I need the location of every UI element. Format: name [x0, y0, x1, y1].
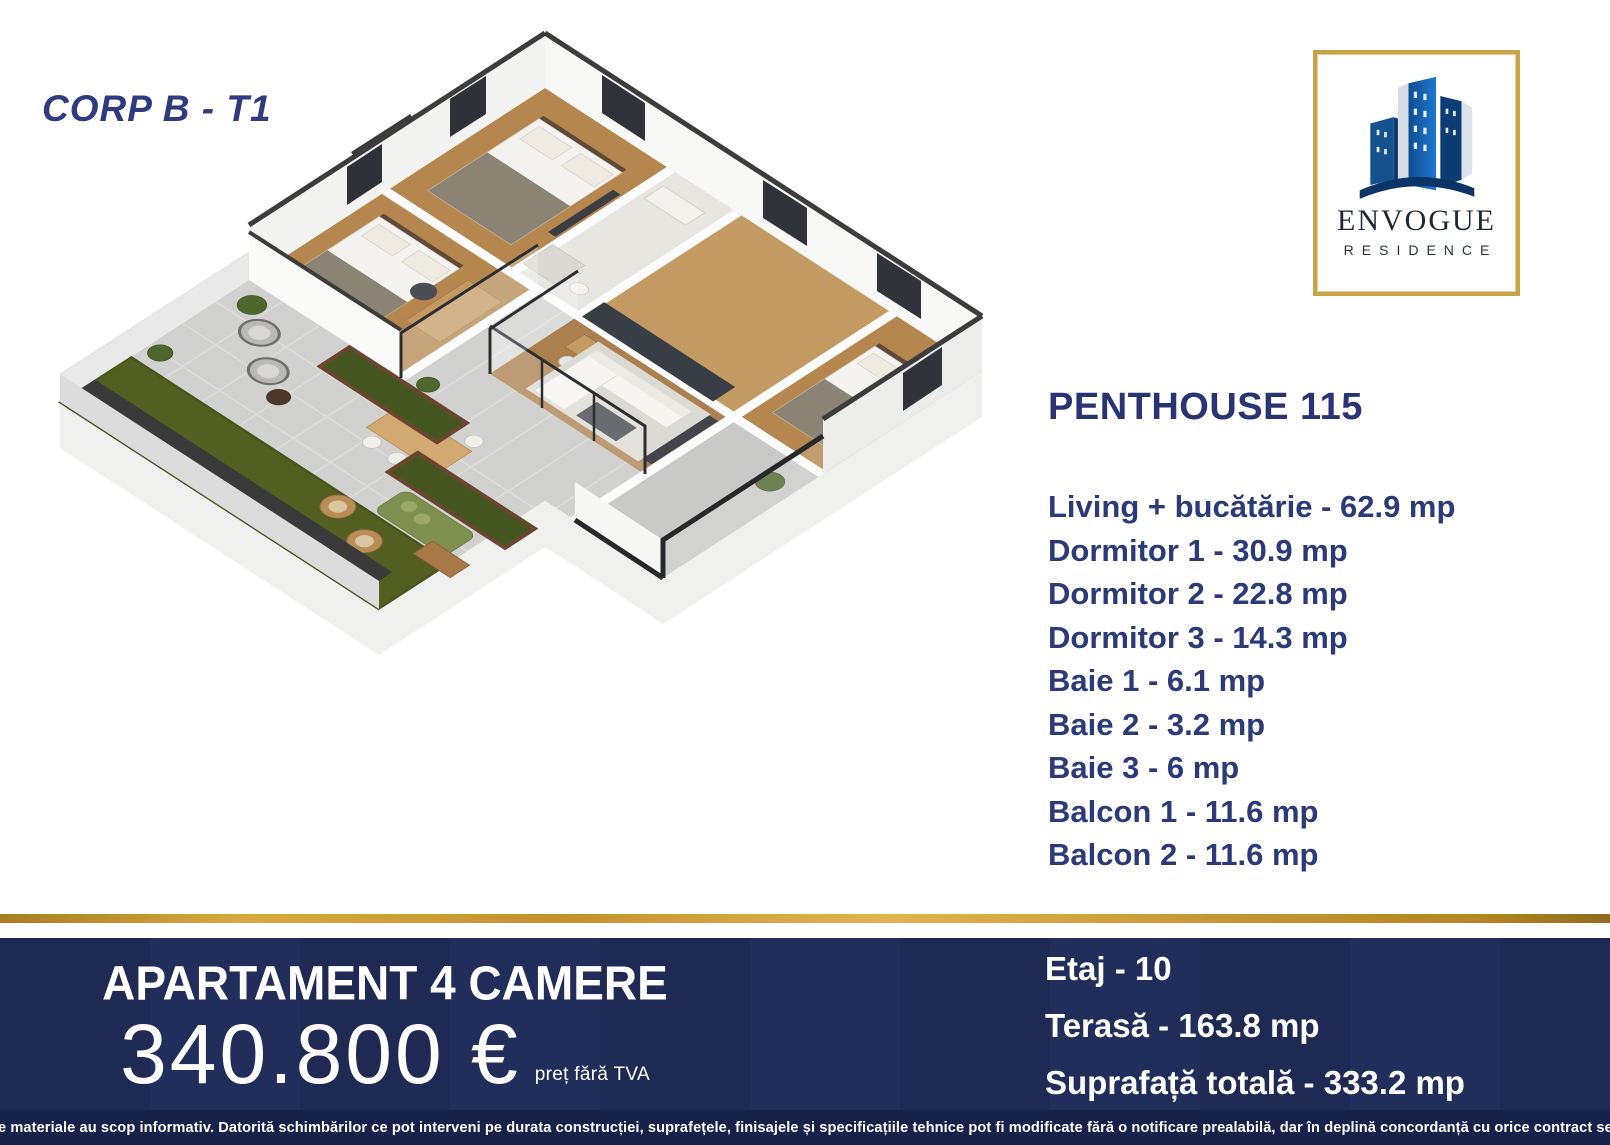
gold-divider [0, 914, 1610, 923]
room-list: Living + bucătărie - 62.9 mp Dormitor 1 … [1048, 485, 1588, 877]
price-note: preț fără TVA [535, 1064, 650, 1096]
room-line-dormitor3: Dormitor 3 - 14.3 mp [1048, 616, 1588, 660]
flyer-page: CORP B - T1 [0, 0, 1610, 1145]
terrace-line: Terasă - 163.8 mp [1045, 1009, 1465, 1043]
logo-name: ENVOGUE [1337, 204, 1496, 238]
logo-subtitle: RESIDENCE [1336, 242, 1498, 258]
logo: ENVOGUE RESIDENCE [1313, 50, 1520, 296]
room-line-baie1: Baie 1 - 6.1 mp [1048, 659, 1588, 703]
details-block: Etaj - 10 Terasă - 163.8 mp Suprafață to… [1045, 952, 1465, 1123]
room-line-balcon2: Balcon 2 - 11.6 mp [1048, 833, 1588, 877]
total-area-line: Suprafață totală - 333.2 mp [1045, 1066, 1465, 1100]
floor-line: Etaj - 10 [1045, 952, 1465, 986]
building-logo-icon [1351, 62, 1483, 202]
room-line-living: Living + bucătărie - 62.9 mp [1048, 485, 1588, 529]
disclaimer: Aceste materiale au scop informativ. Dat… [0, 1110, 1610, 1145]
room-line-baie3: Baie 3 - 6 mp [1048, 746, 1588, 790]
unit-info: PENTHOUSE 115 Living + bucătărie - 62.9 … [1048, 386, 1588, 877]
price: 340.800 € [120, 1012, 521, 1096]
floor-plan-illustration [0, 28, 1040, 888]
unit-title: PENTHOUSE 115 [1048, 386, 1588, 429]
apartment-type: APARTAMENT 4 CAMERE [55, 959, 715, 1007]
price-row: 340.800 € preț fără TVA [55, 1012, 715, 1096]
room-line-baie2: Baie 2 - 3.2 mp [1048, 703, 1588, 747]
room-line-dormitor2: Dormitor 2 - 22.8 mp [1048, 572, 1588, 616]
room-line-balcon1: Balcon 1 - 11.6 mp [1048, 790, 1588, 834]
room-line-dormitor1: Dormitor 1 - 30.9 mp [1048, 529, 1588, 573]
bottom-banner: APARTAMENT 4 CAMERE 340.800 € preț fără … [0, 938, 1610, 1145]
